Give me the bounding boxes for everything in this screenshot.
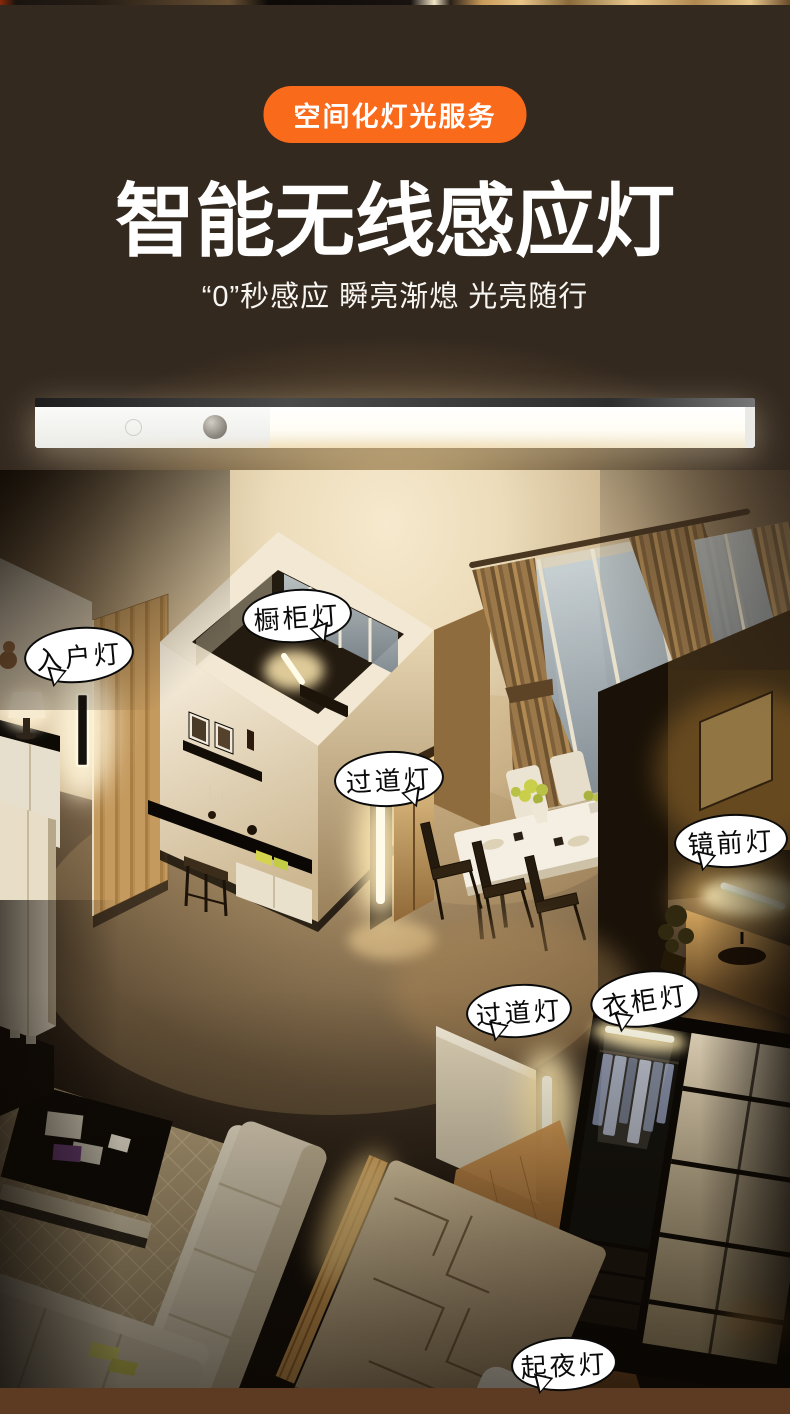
product-light-bar [35, 398, 755, 448]
indicator-button [125, 419, 142, 436]
light-bar-top-edge [35, 398, 755, 407]
label-text-wardrobe-light: 衣柜灯 [599, 975, 690, 1024]
light-bar-body [35, 407, 755, 448]
label-text-cabinet-light: 橱柜灯 [252, 595, 341, 638]
product-title: 智能无线感应灯 [0, 157, 790, 273]
hero-section: 空间化灯光服务 智能无线感应灯 “0”秒感应 瞬亮渐熄 光亮随行 [0, 5, 790, 470]
label-text-night-light: 起夜灯 [520, 1343, 609, 1385]
isometric-home-illustration [0, 470, 790, 1388]
product-subtitle: “0”秒感应 瞬亮渐熄 光亮随行 [0, 273, 790, 315]
label-text-hallway-light-1: 过道灯 [345, 758, 434, 800]
promo-badge: 空间化灯光服务 [264, 86, 527, 143]
light-bar-glow-face [270, 407, 745, 448]
label-text-hallway-light-2: 过道灯 [474, 990, 563, 1033]
hallway-light-1-bar [376, 800, 385, 904]
next-section-edge [0, 1388, 790, 1414]
wine-bottle [247, 729, 254, 751]
light-bar-end-cap [745, 407, 755, 448]
label-text-mirror-light: 镜前灯 [687, 820, 776, 862]
light-bar-sensor-panel [35, 407, 270, 448]
pir-sensor-dome [203, 415, 227, 439]
label-text-entry-light: 入户灯 [34, 633, 124, 677]
